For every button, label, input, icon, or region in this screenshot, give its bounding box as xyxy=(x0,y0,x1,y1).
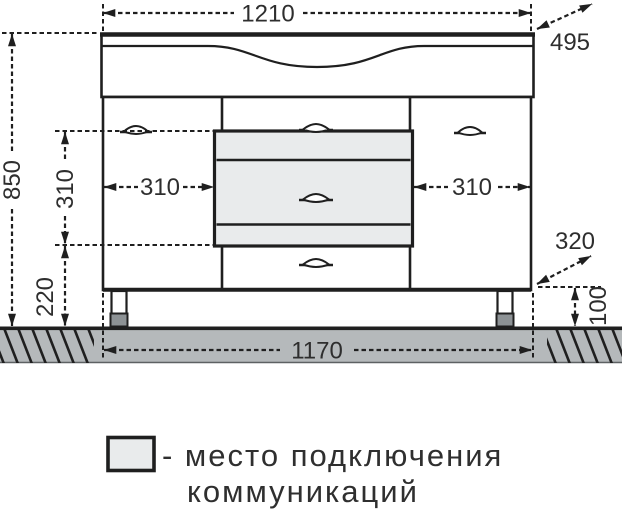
right-leg xyxy=(498,291,513,314)
dim-label-220: 220 xyxy=(32,277,59,317)
dimension-leg-height: 100 xyxy=(538,286,612,326)
dim-label-310-left: 310 xyxy=(140,174,180,201)
left-leg-foot xyxy=(111,314,128,327)
dim-label-310-vertical: 310 xyxy=(52,169,79,209)
left-leg xyxy=(112,291,127,314)
dimension-top-width: 1210 xyxy=(103,1,531,32)
dimension-depth: 495 xyxy=(537,4,592,56)
legend: - место подключения коммуникаций xyxy=(108,438,503,510)
dim-label-850: 850 xyxy=(0,160,26,200)
vanity-dimension-drawing: 1210 495 850 310 220 310 310 320 xyxy=(0,0,622,512)
dim-label-1170: 1170 xyxy=(291,338,343,365)
legend-text-line1: - место подключения xyxy=(162,438,503,473)
connection-area xyxy=(215,131,413,246)
dim-label-310-right: 310 xyxy=(452,174,492,201)
legend-text-line2: коммуникаций xyxy=(187,474,419,509)
dim-label-1210: 1210 xyxy=(241,1,294,28)
floor-line xyxy=(0,327,622,331)
dim-label-320: 320 xyxy=(555,228,595,255)
dim-label-495: 495 xyxy=(550,29,590,56)
countertop xyxy=(102,34,534,97)
legs xyxy=(111,291,514,327)
right-leg-foot xyxy=(497,314,514,327)
technical-drawing-canvas: 1210 495 850 310 220 310 310 320 xyxy=(0,0,622,512)
legend-swatch xyxy=(108,438,154,471)
dim-label-100: 100 xyxy=(585,286,612,326)
cabinet xyxy=(100,34,535,290)
dimension-corner-offset: 320 xyxy=(537,228,595,284)
dimension-bottom-clearance: 220 xyxy=(32,246,65,326)
